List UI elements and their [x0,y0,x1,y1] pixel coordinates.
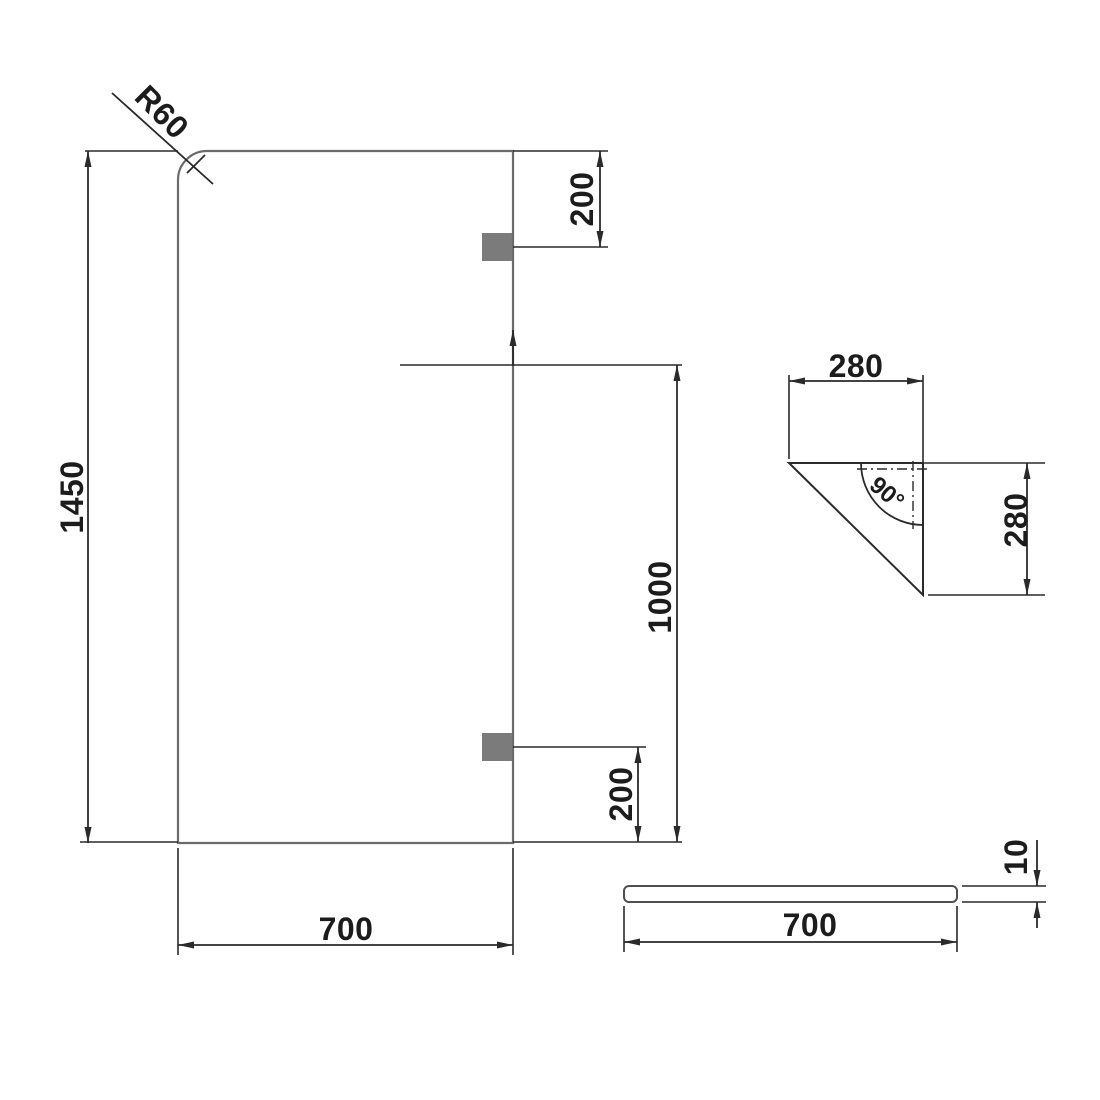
corner-bracket-outline [789,463,923,595]
arrow-up-icon [1024,463,1031,479]
dim-top-offset: 200 [513,151,608,247]
arrow-left-icon [178,942,194,949]
bottom-offset-label: 200 [603,767,639,822]
dim-height: 1450 [54,151,178,843]
dim-bottom-offset: 200 [513,747,682,842]
arrow-left-icon [624,939,640,946]
dim-corner-radius: R60 [112,78,213,184]
arrow-up-icon [510,330,517,346]
dim-width: 700 [178,848,513,955]
arrow-right-icon [907,378,923,385]
corner-radius-label: R60 [128,78,196,146]
arrow-up-icon [85,151,92,167]
front-view: 1450 R60 200 1000 [54,78,682,955]
top-bracket [482,233,513,261]
arrow-left-icon [789,378,805,385]
dim-detail-height: 280 [923,463,1045,595]
dim-profile-thickness: 10 [962,839,1046,928]
side-profile: 700 10 [624,839,1046,952]
detail-width-label: 280 [829,348,884,384]
detail-height-label: 280 [998,493,1034,548]
arrow-down-icon [635,826,642,842]
arrow-down-icon [674,826,681,842]
dim-detail-width: 280 [789,348,923,463]
width-dimension-label: 700 [319,911,374,947]
arrow-down-icon [1024,579,1031,595]
arrow-right-icon [941,939,957,946]
arrow-down-icon [597,231,604,247]
arrow-up-icon [597,151,604,167]
arrow-up-icon [674,365,681,381]
bottom-bracket [482,733,513,761]
height-dimension-label: 1450 [54,460,90,533]
profile-length-label: 700 [783,907,838,943]
bracket-span-label: 1000 [642,560,678,633]
corner-bracket-detail: 280 280 90° [789,348,1045,595]
arrow-down-icon [85,827,92,843]
arrow-up-icon [1034,902,1041,918]
technical-drawing-sheet: 1450 R60 200 1000 [0,0,1100,1100]
profile-thickness-label: 10 [998,839,1034,876]
arrow-down-icon [1034,870,1041,886]
arrow-up-icon [635,747,642,763]
dim-profile-length: 700 [624,906,957,952]
drawing-svg: 1450 R60 200 1000 [0,0,1100,1100]
arrow-right-icon [497,942,513,949]
glass-panel-outline [178,151,513,843]
dim-bracket-span: 1000 [400,330,682,842]
glass-side-profile [624,886,957,902]
top-offset-label: 200 [564,172,600,227]
